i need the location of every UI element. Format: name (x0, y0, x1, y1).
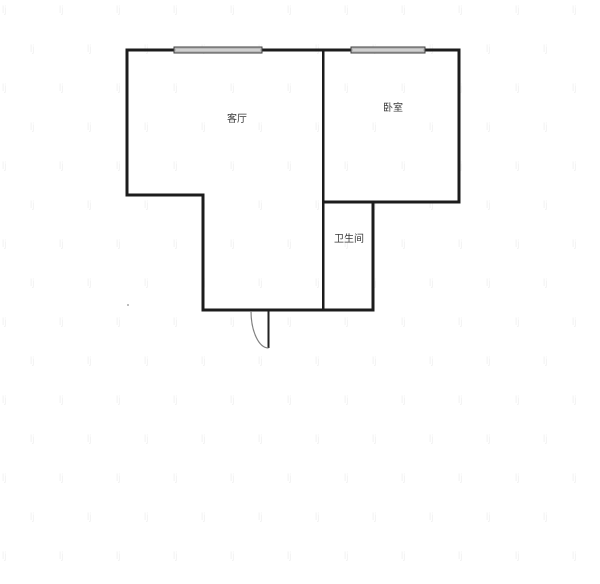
floorplan-drawing (0, 0, 600, 584)
window-living-room (174, 47, 262, 53)
room-label-bedroom: 卧室 (383, 103, 403, 114)
stray-speck (127, 304, 129, 306)
window-bedroom (351, 47, 425, 53)
entry-door (251, 311, 269, 348)
outer-walls (127, 50, 459, 310)
door-swing-arc (251, 311, 269, 348)
floorplan-canvas: ljljljljljljljljljljljljljljljljljljljlj… (0, 0, 600, 584)
room-label-bathroom: 卫生间 (334, 234, 364, 245)
room-label-living-room: 客厅 (227, 114, 247, 125)
